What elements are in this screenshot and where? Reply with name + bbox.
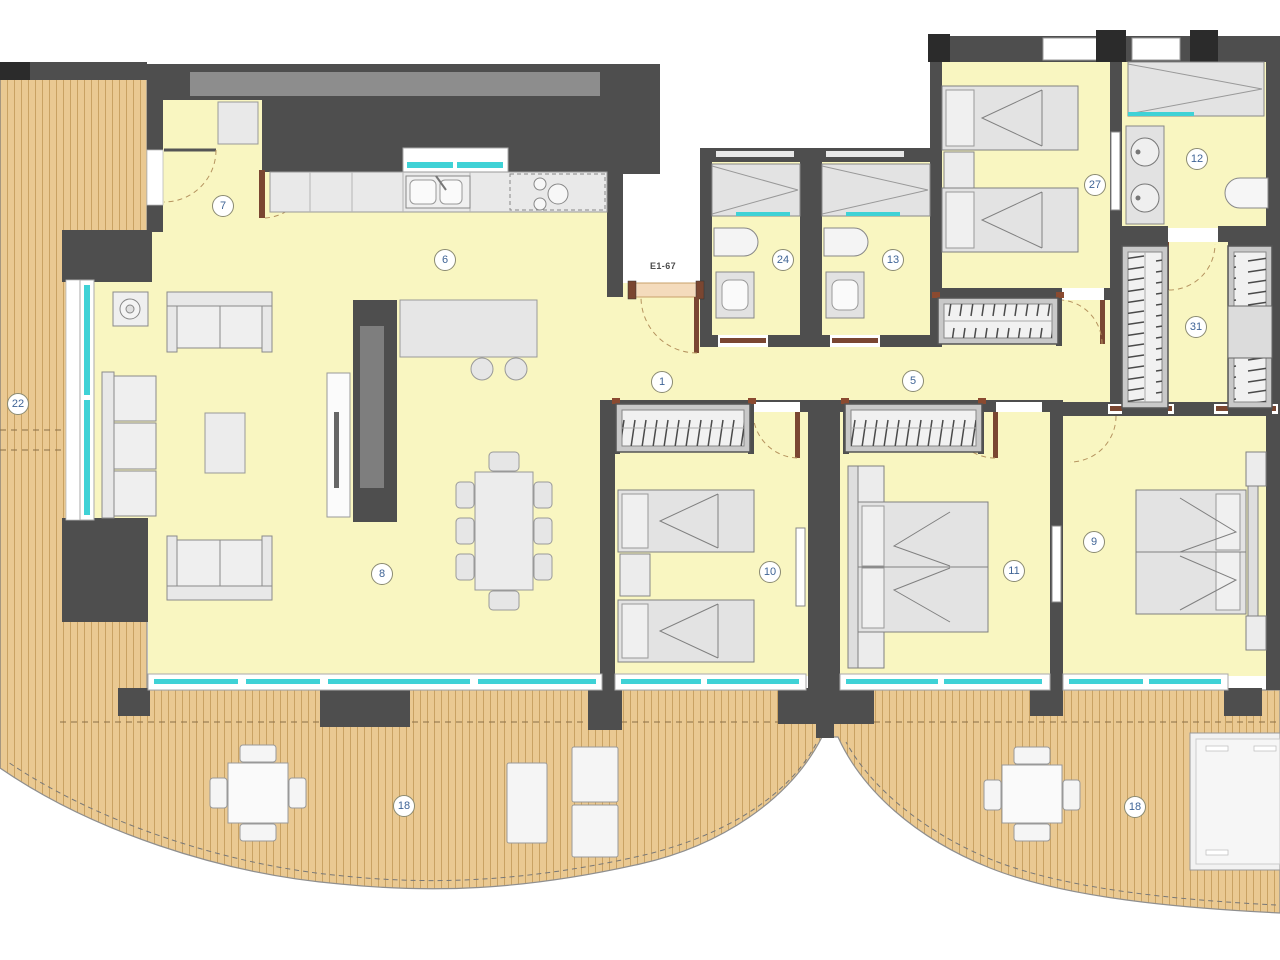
sofa-south [167,536,272,600]
terrace-chair [210,778,227,808]
terrace-table [1002,765,1062,823]
kitchen-sink [406,176,470,208]
room-label-6: 6 [434,249,456,271]
media-partition-inner [360,326,384,488]
room-label-10: 10 [759,561,781,583]
room-label-7: 7 [212,195,234,217]
nightstand [1246,452,1266,486]
terrace-chair [1014,824,1050,841]
double-vanity-12 [1126,126,1164,224]
wardrobe-bedroom-10 [612,398,756,454]
room-label-8: 8 [371,563,393,585]
wardrobe-hallway-5 [932,292,1064,346]
room-label-13: 13 [882,249,904,271]
sliding-door-bedroom-9 [1063,674,1228,690]
terrace-top-wall-corner [0,62,30,80]
room-number: 11 [1008,565,1019,577]
dining-table [475,472,533,590]
kitchen-window-b [457,162,503,168]
shower-13 [822,164,930,216]
tv-panel [327,373,350,517]
room-label-24: 24 [772,249,794,271]
entrance-door-mat [634,283,698,297]
nightstand [944,152,974,188]
bath13-door-leaf [832,338,878,343]
room-number: 12 [1191,153,1203,165]
entrance-door-code: E1-67 [650,261,676,271]
room-number: 31 [1190,321,1202,333]
side-table-lamp [113,292,148,326]
room-label-18-right: 18 [1124,796,1146,818]
window-27-b [1132,38,1180,60]
terrace-divider-wall-base [778,688,874,724]
toilet-13 [826,272,864,318]
shower-24 [712,164,800,216]
sink-24 [714,228,758,256]
room-number: 5 [910,375,916,387]
room-label-5: 5 [902,370,924,392]
facade-pier-4 [1030,688,1063,716]
room-label-9: 9 [1083,531,1105,553]
terrace-chair [1014,747,1050,764]
room-label-22: 22 [7,393,29,415]
sun-lounger [507,763,547,843]
terrace-chair [1063,780,1080,810]
hall-terrace-door-opening [147,150,163,205]
sun-lounger [572,747,618,802]
room-number: 7 [220,200,226,212]
sliding-door-living-south [148,674,602,690]
bar-stool [505,358,527,380]
sliding-door-bedroom-11 [840,674,1050,690]
room-number: 27 [1089,179,1101,191]
kitchen-island [400,300,537,357]
column-c [1190,30,1218,62]
window-slit-13 [826,151,904,157]
room-label-18-left: 18 [393,795,415,817]
terrace-chair [240,745,276,762]
shower-12 [1128,62,1264,116]
column-b [1096,30,1126,62]
bedroom10-pocket-door [796,528,805,606]
facade-pier-5 [1224,688,1262,716]
terrace-divider-wall-stub [816,724,834,738]
room-number: 18 [1129,801,1141,813]
nightstand [858,466,884,502]
sliding-door-bedroom-10 [615,674,806,690]
room-label-11: 11 [1003,560,1025,582]
bedroom27-door-opening [1062,288,1104,300]
terrace-daybed [1190,733,1280,870]
toilet-24 [716,272,754,318]
sink-13 [824,228,868,256]
room-label-12: 12 [1186,148,1208,170]
bedroom10-door-opening [752,402,800,412]
hall-cabinet [218,102,258,144]
bar-stool [471,358,493,380]
room-number: 8 [379,568,385,580]
wardrobe-bedroom-11 [841,398,986,454]
room-label-1: 1 [651,371,673,393]
nightstand [858,632,884,668]
terrace-chair [240,824,276,841]
window-living-west-b [84,400,90,515]
room-number: 24 [777,254,789,266]
nightstand [1246,616,1266,650]
bedroom10-door-leaf [795,412,800,458]
terrace-table [228,763,288,823]
sofa-north [167,292,272,352]
nightstand [620,554,650,596]
bathtub-12 [1225,178,1268,208]
bath12-pocket-door [1111,132,1120,210]
room-number: 13 [887,254,899,266]
room-number: 10 [764,566,776,578]
room-number: 6 [442,254,448,266]
facade-pier-3 [588,688,622,730]
bedroom11-door-leaf [993,412,998,458]
entrance-door-leaf [694,297,699,353]
window-slit-24 [716,151,794,157]
room-number: 18 [398,800,410,812]
wall-shaft-inset [190,72,600,96]
coffee-table [205,413,245,473]
sun-lounger [572,805,618,857]
room-number: 1 [659,376,665,388]
room-label-27: 27 [1084,174,1106,196]
column-a [928,34,950,62]
facade-pier-2 [320,688,410,727]
bedroom11-pocket-door [1052,526,1061,602]
bedroom27-door-leaf [1100,300,1105,344]
room-label-31: 31 [1185,316,1207,338]
kitchen-window-frame [403,148,508,174]
floor-plan-canvas: 7 6 1 24 13 27 12 31 5 8 10 11 9 22 18 1… [0,0,1280,960]
room-number: 9 [1091,536,1097,548]
bath24-door-leaf [720,338,766,343]
facade-pier-1 [118,688,150,716]
bedroom11-door-opening [996,402,1042,412]
terrace-chair [984,780,1001,810]
hall-kitchen-door-leaf [259,170,265,218]
sofa-west [102,372,156,518]
floor-plan-drawing [0,0,1280,960]
terrace-chair [289,778,306,808]
window-living-west-a [84,285,90,395]
room-number: 22 [12,398,24,410]
kitchen-window-a [407,162,453,168]
